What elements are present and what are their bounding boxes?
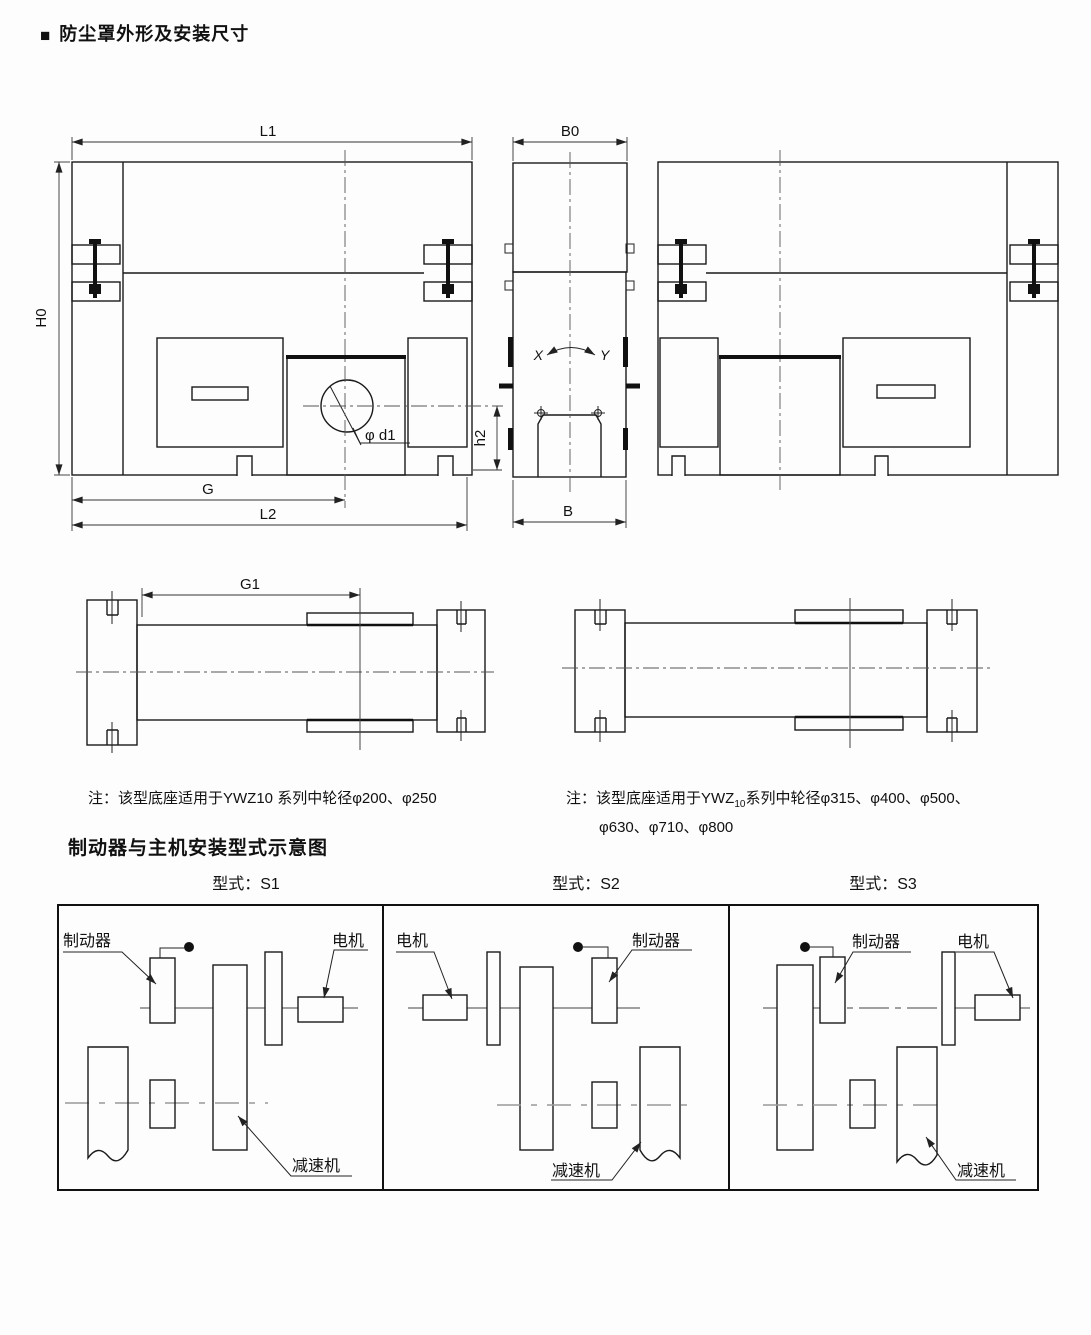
brake-symbol: [820, 957, 845, 1023]
release-lever-knob: [573, 942, 583, 952]
installation-panels: 制动器 电机 减速机 电机 制动器: [58, 905, 1038, 1190]
motor-label: 电机: [332, 932, 364, 950]
dim-label-X: X: [533, 347, 544, 363]
note-large-base: 注：该型底座适用于YWZ10系列中轮径φ315、φ400、φ500、 φ630、…: [566, 787, 1066, 839]
bolt-hole: [591, 406, 605, 420]
dim-label-B: B: [563, 503, 573, 520]
coupling-symbol: [265, 952, 282, 1045]
brake-wheel-symbol: [520, 967, 553, 1150]
reducer-label: 减速机: [957, 1162, 1005, 1180]
note-body: 系列中轮径φ200、φ250: [273, 790, 437, 807]
note-line-2: φ630、φ710、φ800: [599, 816, 1066, 839]
panel-title-s1: 型式：S1: [212, 870, 280, 894]
dim-label-G: G: [202, 481, 214, 498]
dim-label-G1: G1: [240, 576, 260, 593]
note-small-base: 注：该型底座适用于YWZ10 系列中轮径φ200、φ250: [88, 787, 437, 810]
mounting-bracket: [538, 415, 601, 477]
bolt-assembly: [1010, 239, 1058, 301]
dim-label-B0: B0: [561, 123, 579, 140]
thruster-box: [660, 338, 718, 447]
brake-body-box: [843, 338, 970, 447]
front-view-large-base: [658, 150, 1058, 492]
gear-symbol: [150, 1080, 175, 1128]
panel-s3-drawing: 制动器 电机 减速机: [763, 933, 1030, 1180]
note-prefix: 注：: [566, 790, 596, 807]
catalog-page: ■防尘罩外形及安装尺寸: [0, 0, 1091, 1335]
motor-symbol: [298, 997, 343, 1022]
nameplate-slot: [877, 385, 935, 398]
brake-body-box: [157, 338, 283, 447]
brake-wheel-symbol: [213, 965, 247, 1150]
panel-title-s2: 型式：S2: [552, 870, 620, 894]
note-line-1: 注：该型底座适用于YWZ10系列中轮径φ315、φ400、φ500、: [566, 787, 1066, 816]
dimension-G: G: [72, 477, 345, 531]
dim-label-H0: H0: [33, 308, 50, 327]
dimension-G1: G1: [142, 576, 360, 617]
bolt-hole: [534, 406, 548, 420]
top-view-large-base: [562, 598, 992, 748]
dimension-h2: h2: [472, 406, 502, 470]
rotation-direction-arc: X Y: [533, 347, 611, 363]
brake-symbol: [150, 958, 175, 1023]
bolt-assembly: [72, 239, 120, 301]
brake-label: 制动器: [63, 932, 111, 950]
panel-s2-drawing: 电机 制动器 减速机: [396, 932, 692, 1180]
section-heading: 制动器与主机安装型式示意图: [68, 833, 328, 860]
release-lever: [810, 947, 833, 957]
dim-label-Y: Y: [600, 347, 611, 363]
reducer-label: 减速机: [292, 1157, 340, 1175]
brake-label: 制动器: [852, 933, 900, 951]
brake-wheel-symbol: [777, 965, 813, 1150]
note-body: 该型底座适用于YWZ: [596, 790, 734, 807]
dimension-phi-d1: φ d1: [353, 427, 410, 444]
dimension-B: B: [513, 480, 626, 528]
brake-label: 制动器: [632, 932, 680, 950]
top-view-small-base: G1: [76, 576, 494, 753]
release-lever: [583, 947, 608, 958]
reducer-shaft-break: [88, 1047, 128, 1161]
release-lever: [160, 948, 184, 958]
coupling-symbol: [487, 952, 500, 1045]
dimension-L1: L1: [72, 123, 472, 160]
motor-symbol: [423, 995, 467, 1020]
panel-title-s3: 型式：S3: [849, 870, 917, 894]
dimension-L2: L2: [72, 477, 467, 531]
front-view-small-base: L1 H0 G L2: [33, 123, 503, 531]
motor-label: 电机: [957, 933, 989, 951]
bolt-assembly: [658, 239, 706, 301]
dim-label-L2: L2: [260, 506, 277, 523]
release-lever-knob: [800, 942, 810, 952]
reducer-label: 减速机: [552, 1162, 600, 1180]
note-series-subscript: 10: [734, 799, 745, 810]
side-view: X Y B0 B: [499, 123, 640, 528]
panel-s1-drawing: 制动器 电机 减速机: [63, 932, 368, 1176]
motor-label: 电机: [396, 932, 428, 950]
thruster-box: [408, 338, 467, 447]
note-body: 该型底座适用于YWZ: [118, 790, 256, 807]
bolt-assembly: [424, 239, 472, 301]
technical-drawing-canvas: L1 H0 G L2: [0, 0, 1091, 1335]
brake-symbol: [592, 958, 617, 1023]
reducer-shaft-break: [897, 1047, 937, 1165]
coupling-symbol: [942, 952, 955, 1045]
dim-label-h2: h2: [472, 430, 489, 447]
note-body: 系列中轮径φ315、φ400、φ500、: [745, 790, 969, 807]
note-series-number: 10: [256, 790, 273, 807]
gear-symbol: [850, 1080, 875, 1128]
release-lever-knob: [184, 942, 194, 952]
note-prefix: 注：: [88, 790, 118, 807]
reducer-shaft-break: [640, 1047, 680, 1161]
dimension-H0: H0: [33, 162, 70, 475]
dim-label-phi-d1: φ d1: [365, 427, 396, 444]
motor-symbol: [975, 995, 1020, 1020]
nameplate-slot: [192, 387, 248, 400]
dim-label-L1: L1: [260, 123, 277, 140]
